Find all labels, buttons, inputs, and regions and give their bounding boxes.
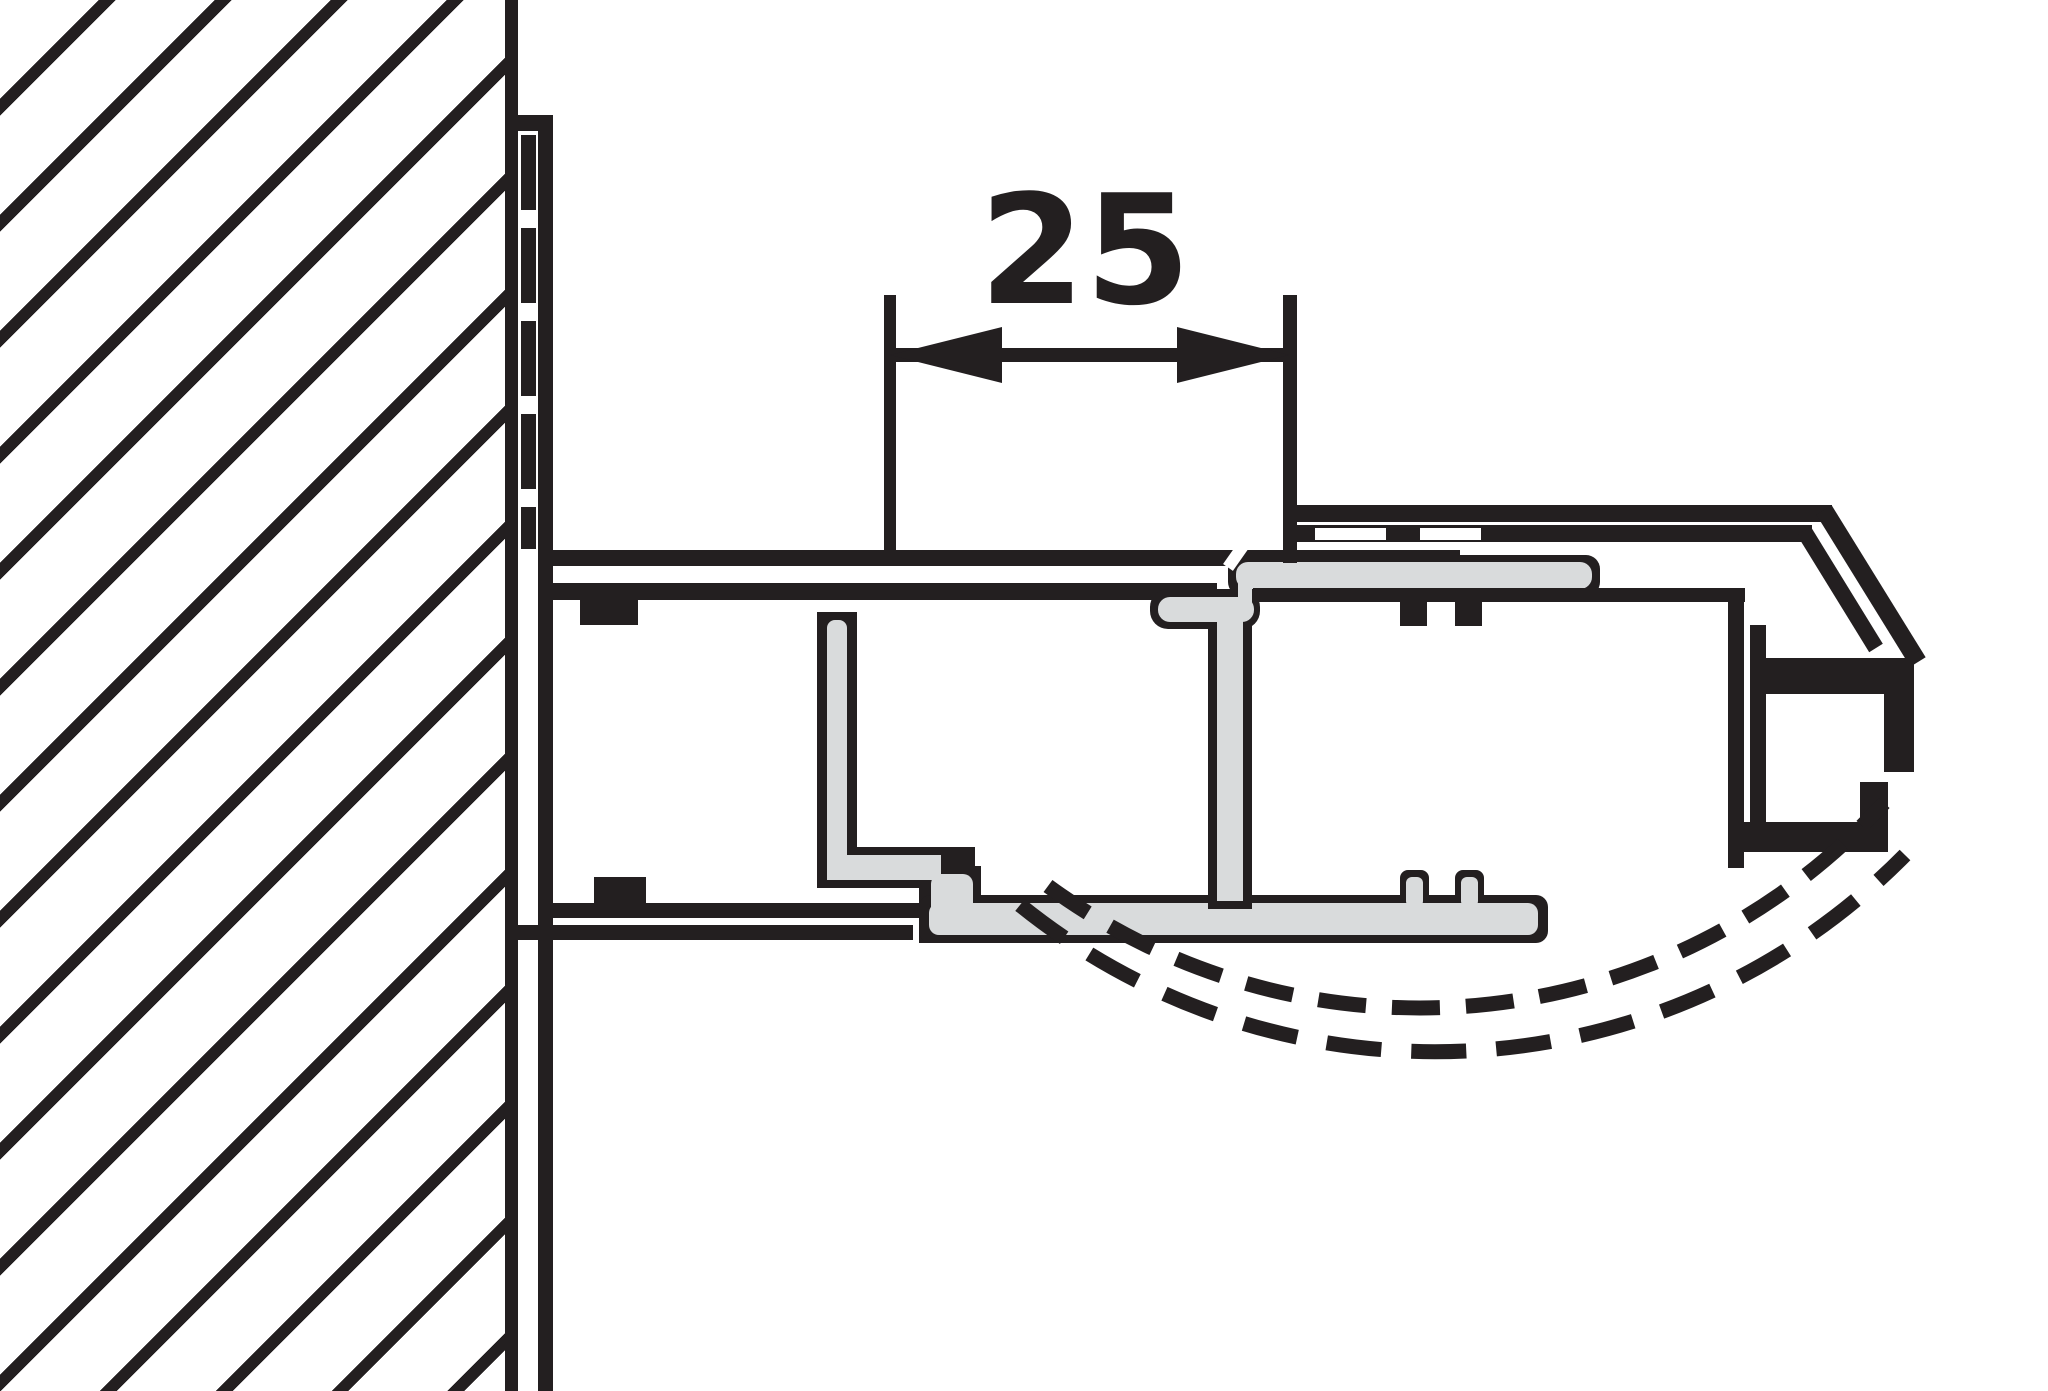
seal-l-vertical: [827, 620, 847, 880]
seal-band-tab-1: [1406, 877, 1423, 907]
wall-edge-line: [505, 0, 518, 1391]
seal-s-bridge: [1238, 580, 1252, 605]
dimension-arrow-right: [1177, 327, 1289, 383]
rail-slot-window-2: [1420, 528, 1481, 540]
seal-center-stem: [1217, 620, 1243, 901]
lower-arm-line: [505, 925, 913, 940]
box-inner-tab-bottom: [594, 877, 646, 903]
rail-left-end-cap: [1283, 295, 1297, 563]
box-left-edge: [538, 583, 553, 918]
rail-hook-tab-2: [1455, 602, 1482, 626]
rail-top-outer-edge: [1297, 505, 1832, 522]
rail-c-groove: [1728, 588, 1914, 868]
seal-upper-band: [1236, 562, 1592, 589]
box-top-edge: [538, 583, 1217, 600]
main-profile-box: [505, 550, 1460, 940]
wall-profile-dashed-line: [521, 135, 536, 549]
rail-mid-edge: [1253, 588, 1745, 602]
box-inner-tab-top: [580, 600, 638, 625]
seal-band-tab-2: [1461, 877, 1478, 907]
profile-section-svg: 25: [0, 0, 2048, 1391]
dimension-25: 25: [884, 162, 1289, 551]
rail-slot-window-1: [1315, 528, 1386, 540]
box-bottom-edge: [538, 903, 923, 918]
dimension-extension-line-left: [884, 295, 896, 551]
rail-hook-tab-1: [1400, 602, 1427, 626]
technical-section-drawing: 25: [0, 0, 2048, 1391]
bottom-seal-gasket: [817, 612, 1548, 943]
seal-l-strip: [827, 855, 941, 880]
dimension-value: 25: [979, 162, 1191, 339]
